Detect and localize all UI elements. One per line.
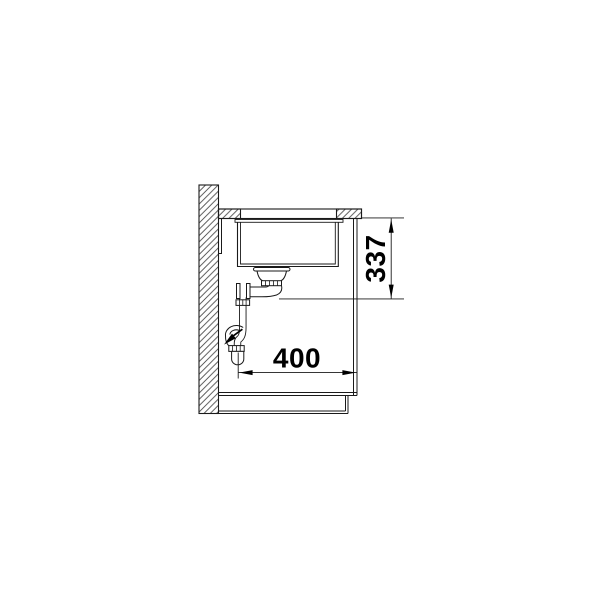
cabinet-bottom-panel <box>219 393 358 396</box>
worktop <box>219 209 362 219</box>
plinth <box>219 396 349 414</box>
section-drawing-svg: 400 337 <box>0 0 600 600</box>
dimension-horizontal: 400 <box>238 343 357 379</box>
strainer-flange <box>254 268 291 272</box>
arrowhead-up-icon <box>389 219 394 232</box>
pipe-coupling-upper <box>236 300 250 306</box>
worktop-hatch-right <box>337 209 362 219</box>
dimension-vertical: 337 <box>279 218 404 299</box>
cabinet-side-panel <box>354 219 358 396</box>
drain-strainer <box>237 268 291 299</box>
worktop-hatch-left <box>219 209 241 219</box>
dim-label-400: 400 <box>273 343 321 374</box>
union-nut-flange <box>237 284 241 299</box>
sink <box>235 220 343 267</box>
trap-cup <box>232 351 244 364</box>
union-nut-flange <box>247 284 251 299</box>
basin-outer-wall <box>238 222 339 266</box>
arrowhead-left-icon <box>239 370 252 375</box>
strainer-body <box>257 271 287 281</box>
wall-section <box>199 185 219 414</box>
drain-assembly <box>224 298 250 365</box>
sink-rim <box>235 220 343 223</box>
strainer-collar <box>262 281 282 286</box>
basin-inner-wall <box>241 222 336 264</box>
dim-label-337: 337 <box>360 234 391 282</box>
pipe-coupling-lower <box>229 346 244 352</box>
sink-installation-drawing: 400 337 <box>0 0 600 600</box>
arrowhead-down-icon <box>389 285 394 298</box>
